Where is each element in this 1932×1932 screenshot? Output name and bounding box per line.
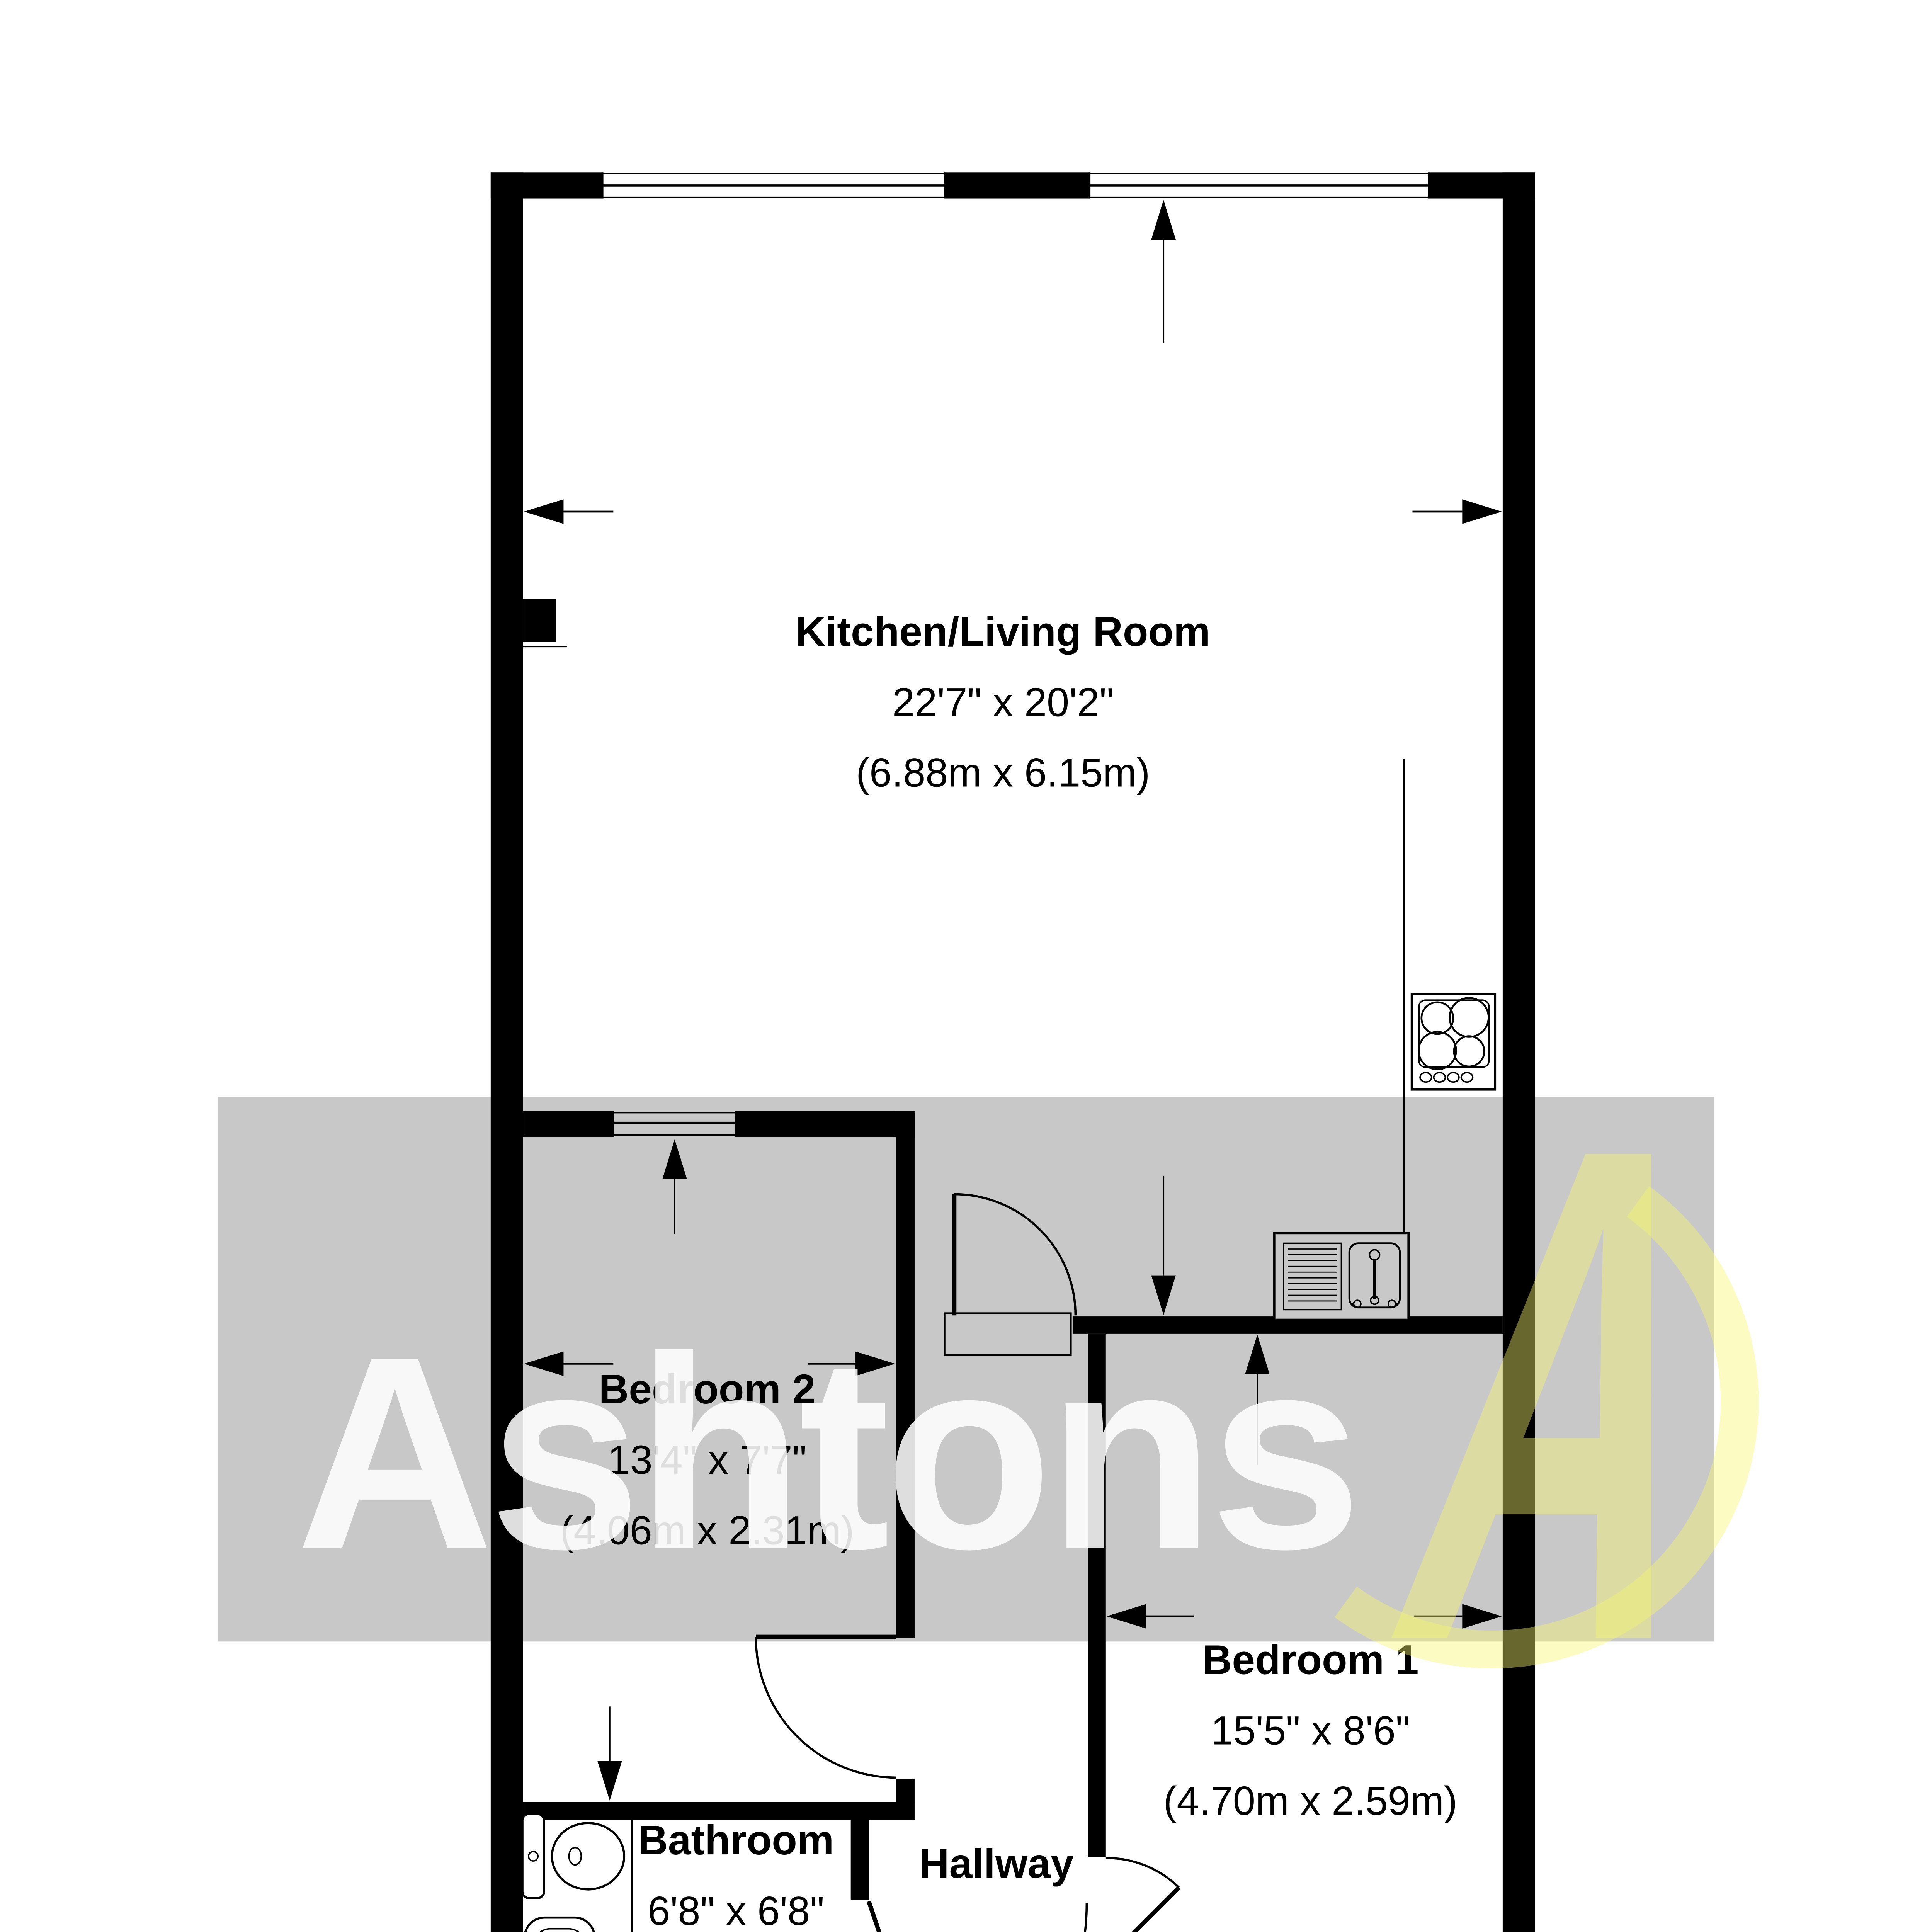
hob-icon: [1412, 994, 1495, 1089]
left-wall: [491, 172, 523, 1932]
kitchen-dim-metric: (6.88m x 6.15m): [856, 750, 1150, 795]
bedroom2-right-wall-stub: [896, 1779, 915, 1803]
top-wall-mid: [945, 172, 1089, 198]
bathroom-sink-icon: [525, 1918, 595, 1932]
bathroom-right-wall-upper: [851, 1820, 869, 1900]
windows: [602, 172, 1429, 1137]
bedroom2-door: [756, 1637, 896, 1777]
watermark: Ashtons A: [218, 1002, 1789, 1787]
kitchen-width-arrow-right: [1412, 499, 1502, 524]
floorplan-page: Kitchen/Living Room 22'7" x 20'2" (6.88m…: [0, 0, 1932, 1932]
bathroom-door: [869, 1901, 1087, 1932]
hallway-label: Hallway: [919, 1840, 1074, 1887]
left-wall-pier: [523, 599, 556, 642]
kitchen-label: Kitchen/Living Room: [796, 608, 1211, 655]
toilet-icon: [522, 1814, 624, 1898]
bathroom-dim-imperial: 6'8" x 6'8": [648, 1888, 824, 1932]
kitchen-width-arrow-left: [524, 499, 614, 524]
bedroom2-height-arrow-down: [597, 1706, 622, 1801]
kitchen-height-arrow-up: [1151, 200, 1175, 343]
watermark-brand-text: Ashtons: [296, 1300, 1357, 1606]
kitchen-dim-imperial: 22'7" x 20'2": [892, 680, 1114, 725]
floor-plan-svg: Kitchen/Living Room 22'7" x 20'2" (6.88m…: [0, 0, 1932, 1932]
window-top-right: [1090, 172, 1429, 198]
bedroom1-door: [1106, 1858, 1179, 1932]
bathroom-label: Bathroom: [638, 1817, 834, 1863]
window-top-left: [602, 172, 945, 198]
